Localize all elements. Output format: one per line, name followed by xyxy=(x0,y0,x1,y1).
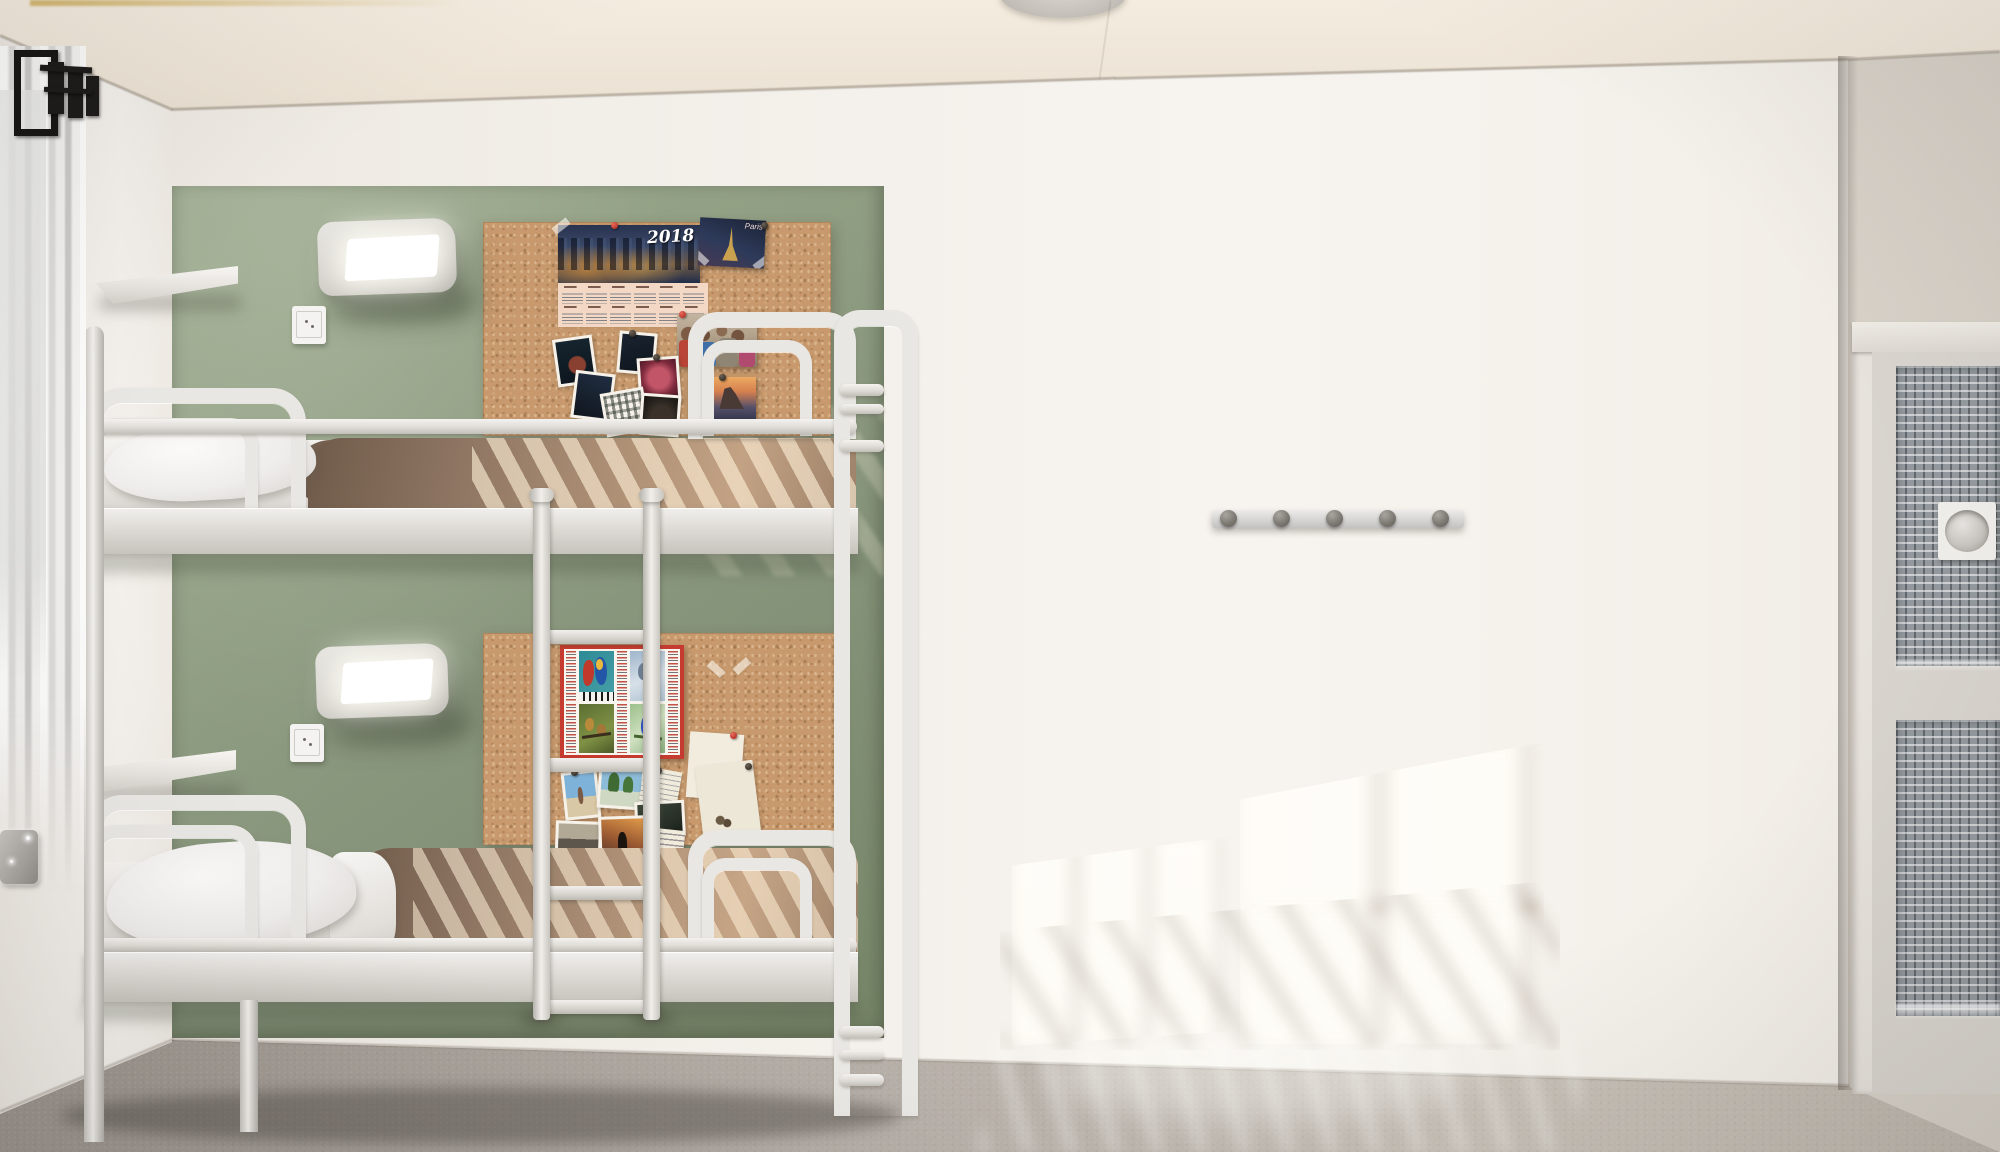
coat-hook xyxy=(1432,510,1449,527)
ladder-rung xyxy=(534,1000,660,1014)
coat-hook-rail xyxy=(1212,510,1464,528)
ceiling-cove-light xyxy=(30,0,460,6)
mini-month xyxy=(659,286,680,304)
coat-hook xyxy=(1379,510,1396,527)
mini-month xyxy=(634,306,655,324)
bed-post-left xyxy=(84,326,104,1142)
mini-month xyxy=(610,286,631,304)
lower-guard-rail xyxy=(95,938,857,952)
calendar-column xyxy=(668,651,678,701)
ladder-rung xyxy=(534,886,660,900)
push-pin xyxy=(611,222,618,229)
end-frame-rung xyxy=(840,384,884,396)
end-frame-rung xyxy=(840,1074,884,1086)
lower-bed-deck xyxy=(84,952,858,1002)
end-frame-rung xyxy=(840,404,884,414)
mini-month xyxy=(586,306,607,324)
end-frame-rung xyxy=(840,1026,884,1038)
calendar-column xyxy=(566,651,576,701)
mesh-glint xyxy=(1896,1004,2000,1018)
mesh-glint xyxy=(1896,660,2000,670)
mesh-panel-lower xyxy=(1896,720,2000,1016)
bed-floor-shadow xyxy=(60,1088,900,1144)
calendar-city-photo: 2018 xyxy=(558,225,700,283)
room-render: 2018 Paris xyxy=(0,0,2000,1152)
calendar-poster-2018: 2018 xyxy=(558,225,700,321)
curtain-bracket xyxy=(68,70,83,118)
end-frame-rung xyxy=(840,440,884,452)
power-outlet-upper xyxy=(292,306,326,344)
end-frame-rung xyxy=(840,1050,884,1060)
push-pin xyxy=(745,763,752,770)
tape-strip xyxy=(733,657,752,675)
coat-hook xyxy=(1220,510,1237,527)
mini-month xyxy=(562,306,583,324)
bed-leg-inner xyxy=(240,1000,258,1132)
lamp-light-panel xyxy=(345,234,440,281)
mini-month xyxy=(683,286,704,304)
door-frame xyxy=(1852,322,2000,1094)
upper-bed-deck xyxy=(84,508,858,554)
bed-end-frame-right xyxy=(834,310,918,1116)
door-header xyxy=(1852,322,2000,352)
door-handle-recess xyxy=(1945,510,1989,552)
ladder-hook xyxy=(639,488,664,502)
push-pin xyxy=(629,330,636,337)
macaw-photo xyxy=(579,651,614,701)
ladder-rail-left xyxy=(533,494,550,1020)
bed-shadow xyxy=(84,1004,860,1020)
push-pin xyxy=(761,222,768,229)
tape-strip xyxy=(707,660,726,678)
mesh-door xyxy=(1872,352,2000,1094)
lamp-light-panel xyxy=(341,658,434,704)
paris-photo: Paris xyxy=(698,217,766,268)
calendar-column xyxy=(668,704,678,754)
bird-calendar-poster xyxy=(560,645,684,759)
upper-blanket xyxy=(308,438,856,514)
wall-lamp-upper xyxy=(317,218,457,297)
ladder-rung xyxy=(534,630,660,644)
curtain-sheer-panel xyxy=(0,90,46,678)
power-outlet-lower xyxy=(290,724,324,762)
wall-lamp-lower xyxy=(315,643,449,720)
bed-shadow xyxy=(84,556,860,572)
floor-light-pool xyxy=(1050,1030,1470,1120)
coat-hook xyxy=(1326,510,1343,527)
push-pin xyxy=(653,354,660,361)
tape-strip xyxy=(752,255,766,268)
bee-eater-photo xyxy=(579,704,614,754)
ladder-hook xyxy=(529,488,554,502)
tape-strip xyxy=(698,250,710,266)
coat-hook xyxy=(1273,510,1290,527)
mini-month xyxy=(610,306,631,324)
photo-beach xyxy=(561,769,602,821)
push-pin xyxy=(679,311,686,318)
mini-month xyxy=(586,286,607,304)
upper-guard-rail xyxy=(95,419,857,434)
curtain-bracket xyxy=(86,76,99,116)
calendar-column xyxy=(617,651,627,701)
calendar-column xyxy=(566,704,576,754)
calendar-column xyxy=(617,704,627,754)
mini-month xyxy=(634,286,655,304)
ladder-rail-right xyxy=(643,494,660,1020)
ladder-rung xyxy=(534,758,660,772)
push-pin xyxy=(730,732,737,739)
door-handle-plate xyxy=(1938,502,1996,560)
handwritten-letter xyxy=(695,760,762,841)
mini-month xyxy=(562,286,583,304)
calendar-year-text: 2018 xyxy=(646,226,694,248)
eiffel-tower-shape xyxy=(722,227,740,262)
sunlight-stripes xyxy=(472,438,856,514)
curtain-clamp-bracket xyxy=(0,830,38,884)
